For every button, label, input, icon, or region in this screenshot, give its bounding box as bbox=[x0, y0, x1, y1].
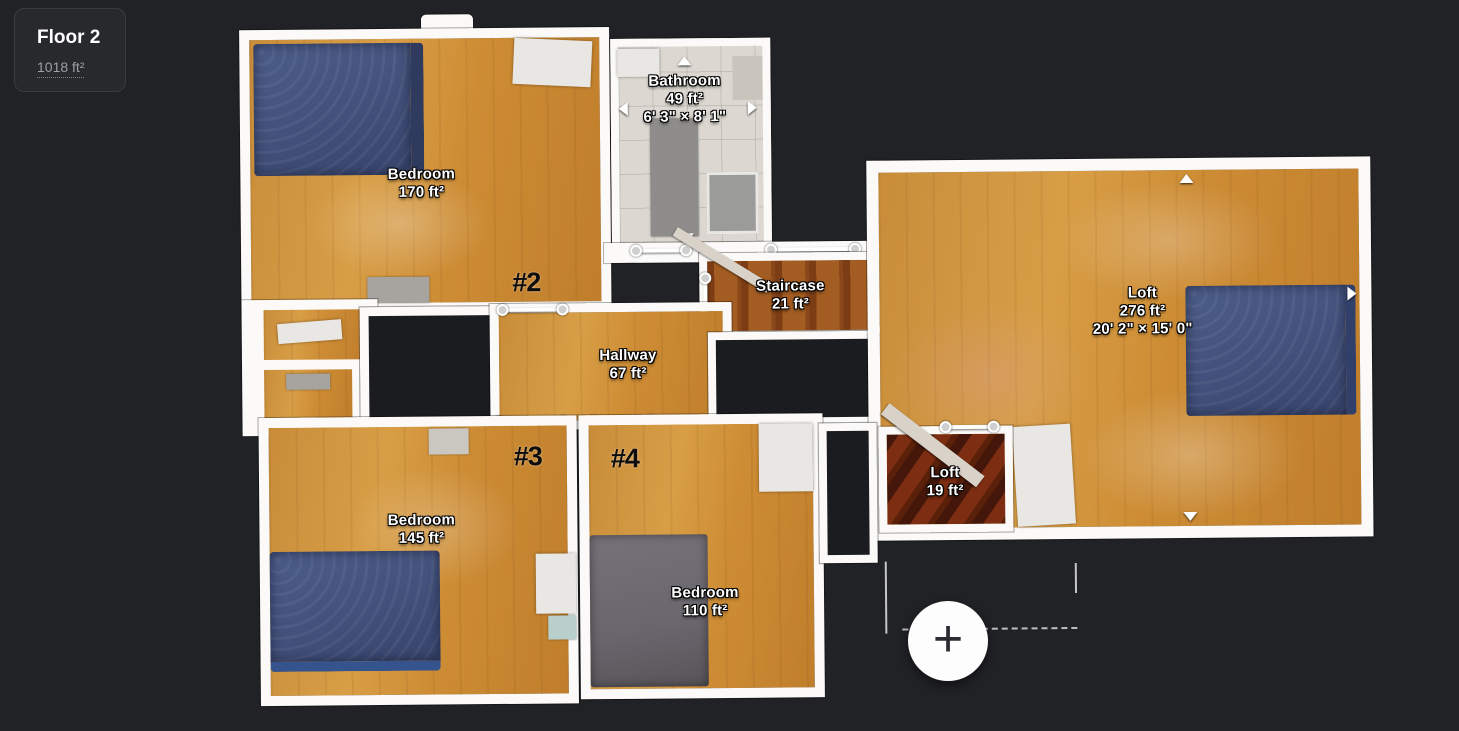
unscanned-void bbox=[819, 423, 878, 564]
desk bbox=[536, 553, 577, 613]
hidden-room-edge bbox=[885, 562, 888, 634]
resize-arrow-left-icon[interactable] bbox=[619, 102, 628, 116]
resize-arrow-up-icon[interactable] bbox=[1179, 174, 1193, 183]
resize-arrow-right-icon[interactable] bbox=[748, 101, 757, 115]
desk bbox=[512, 38, 592, 87]
storage-box bbox=[548, 615, 576, 639]
bed-mattress bbox=[590, 534, 709, 687]
resize-arrow-down-icon[interactable] bbox=[1183, 512, 1197, 521]
sink bbox=[617, 49, 659, 77]
door-handle[interactable] bbox=[503, 307, 563, 312]
dresser bbox=[1012, 424, 1076, 527]
floor-stain bbox=[1058, 179, 1279, 301]
unscanned-void bbox=[360, 306, 501, 431]
toilet bbox=[732, 56, 762, 100]
add-button[interactable]: + bbox=[908, 601, 988, 681]
closet-box bbox=[286, 373, 330, 389]
resize-arrow-up-icon[interactable] bbox=[677, 56, 691, 65]
floor-area[interactable]: 1018 ft² bbox=[37, 59, 84, 78]
shelf bbox=[429, 428, 469, 454]
laundry-basket bbox=[706, 172, 759, 234]
floor-stain bbox=[310, 168, 491, 280]
floor-title: Floor 2 bbox=[37, 27, 100, 49]
plus-icon: + bbox=[933, 613, 963, 665]
closet bbox=[759, 423, 814, 491]
door-handle[interactable] bbox=[636, 248, 686, 252]
floorplan-canvas[interactable]: Bedroom 170 ft² #2 Bathroom 49 ft² 6' 3"… bbox=[0, 0, 1459, 731]
bed-mattress bbox=[1185, 285, 1356, 416]
resize-arrow-right-icon[interactable] bbox=[1347, 287, 1356, 301]
door-handle[interactable] bbox=[771, 247, 855, 252]
room-hallway[interactable] bbox=[489, 302, 732, 430]
hidden-room-edge bbox=[1075, 563, 1077, 593]
bath-mat bbox=[650, 118, 699, 236]
floor-selector-panel[interactable]: Floor 2 1018 ft² bbox=[14, 8, 126, 92]
door-handle[interactable] bbox=[946, 425, 994, 429]
unscanned-void bbox=[708, 331, 879, 426]
bed-mattress bbox=[253, 43, 424, 176]
room-loft-19[interactable] bbox=[879, 426, 1014, 533]
bed-mattress bbox=[270, 551, 441, 672]
